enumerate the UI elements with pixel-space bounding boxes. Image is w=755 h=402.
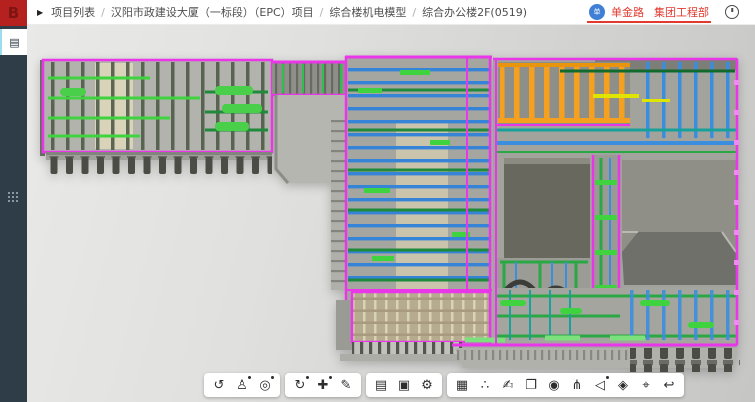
markup-hand-icon: ✍: [503, 378, 514, 393]
copy-icon-button[interactable]: ❐: [521, 375, 541, 395]
document-icon: ▤: [375, 378, 387, 393]
structure-tree-icon-button[interactable]: ⋔: [567, 375, 587, 395]
zoom-window-icon-button[interactable]: ◎: [255, 375, 275, 395]
rotate-view-icon: ↻: [295, 378, 306, 393]
toolbar-group: ↺♙◎: [204, 373, 280, 397]
pan-move-icon: ✚: [318, 378, 329, 393]
model-viewport[interactable]: [0, 0, 755, 402]
orbit-icon: ↺: [214, 378, 225, 393]
fit-view-icon: ⌖: [642, 378, 649, 393]
power-icon[interactable]: [725, 5, 739, 19]
sidebar-item-model-panel[interactable]: ▤: [0, 29, 27, 55]
save-view-icon: ▣: [398, 378, 410, 393]
breadcrumb: ▶ 项目列表/汉阳市政建设大厦（一标段）（EPC）项目/综合楼机电模型/综合办公…: [37, 4, 527, 20]
copy-icon: ❐: [525, 378, 537, 393]
sidebar: B ▤: [0, 0, 27, 402]
reset-view-icon: ↩: [664, 378, 675, 393]
bottom-toolbar: ↺♙◎↻✚✎▤▣⚙▦∴✍❐◉⋔◁◈⌖↩: [204, 373, 684, 397]
save-view-icon-button[interactable]: ▣: [394, 375, 414, 395]
zoom-window-icon: ◎: [259, 378, 270, 393]
user-department[interactable]: 集团工程部: [654, 4, 709, 20]
layers-icon: ▤: [9, 36, 19, 49]
settings-gear-icon: ⚙: [421, 378, 433, 393]
model-box-icon-button[interactable]: ▦: [452, 375, 472, 395]
breadcrumb-arrow-icon[interactable]: ▶: [37, 8, 43, 17]
walk-mode-icon: ♙: [236, 378, 248, 393]
measure-icon: ✎: [341, 378, 352, 393]
reset-view-icon-button[interactable]: ↩: [659, 375, 679, 395]
topbar-right: 单 单金路 集团工程部: [587, 0, 745, 24]
breadcrumb-item[interactable]: 综合楼机电模型: [329, 4, 406, 20]
user-block: 单 单金路 集团工程部: [587, 0, 711, 24]
pan-move-icon-button[interactable]: ✚: [313, 375, 333, 395]
breadcrumb-item[interactable]: 项目列表: [51, 4, 95, 20]
top-bar: ▶ 项目列表/汉阳市政建设大厦（一标段）（EPC）项目/综合楼机电模型/综合办公…: [27, 0, 755, 25]
grid-icon[interactable]: [8, 192, 10, 194]
model-box-icon: ▦: [456, 378, 468, 393]
measure-icon-button[interactable]: ✎: [336, 375, 356, 395]
avatar[interactable]: 单: [589, 4, 605, 20]
fit-view-icon-button[interactable]: ⌖: [636, 375, 656, 395]
material-icon: ◈: [618, 378, 628, 393]
toolbar-group: ▤▣⚙: [366, 373, 442, 397]
breadcrumb-separator: /: [320, 6, 324, 19]
toolbar-group: ↻✚✎: [285, 373, 361, 397]
app-logo[interactable]: B: [0, 0, 27, 26]
orbit-icon-button[interactable]: ↺: [209, 375, 229, 395]
breadcrumb-item[interactable]: 汉阳市政建设大厦（一标段）（EPC）项目: [111, 4, 314, 20]
document-icon-button[interactable]: ▤: [371, 375, 391, 395]
snapshot-icon-button[interactable]: ◉: [544, 375, 564, 395]
section-icon-button[interactable]: ◁: [590, 375, 610, 395]
share-icon: ∴: [481, 378, 489, 393]
markup-hand-icon-button[interactable]: ✍: [498, 375, 518, 395]
toolbar-group: ▦∴✍❐◉⋔◁◈⌖↩: [447, 373, 684, 397]
walk-mode-icon-button[interactable]: ♙: [232, 375, 252, 395]
material-icon-button[interactable]: ◈: [613, 375, 633, 395]
bim-model: [40, 56, 740, 372]
share-icon-button[interactable]: ∴: [475, 375, 495, 395]
breadcrumb-item[interactable]: 综合办公楼2F(0519): [422, 4, 527, 20]
rotate-view-icon-button[interactable]: ↻: [290, 375, 310, 395]
section-icon: ◁: [595, 378, 605, 393]
breadcrumb-separator: /: [412, 6, 416, 19]
breadcrumb-separator: /: [101, 6, 105, 19]
structure-tree-icon: ⋔: [572, 378, 583, 393]
settings-gear-icon-button[interactable]: ⚙: [417, 375, 437, 395]
user-name[interactable]: 单金路: [611, 4, 644, 20]
snapshot-icon: ◉: [548, 378, 559, 393]
